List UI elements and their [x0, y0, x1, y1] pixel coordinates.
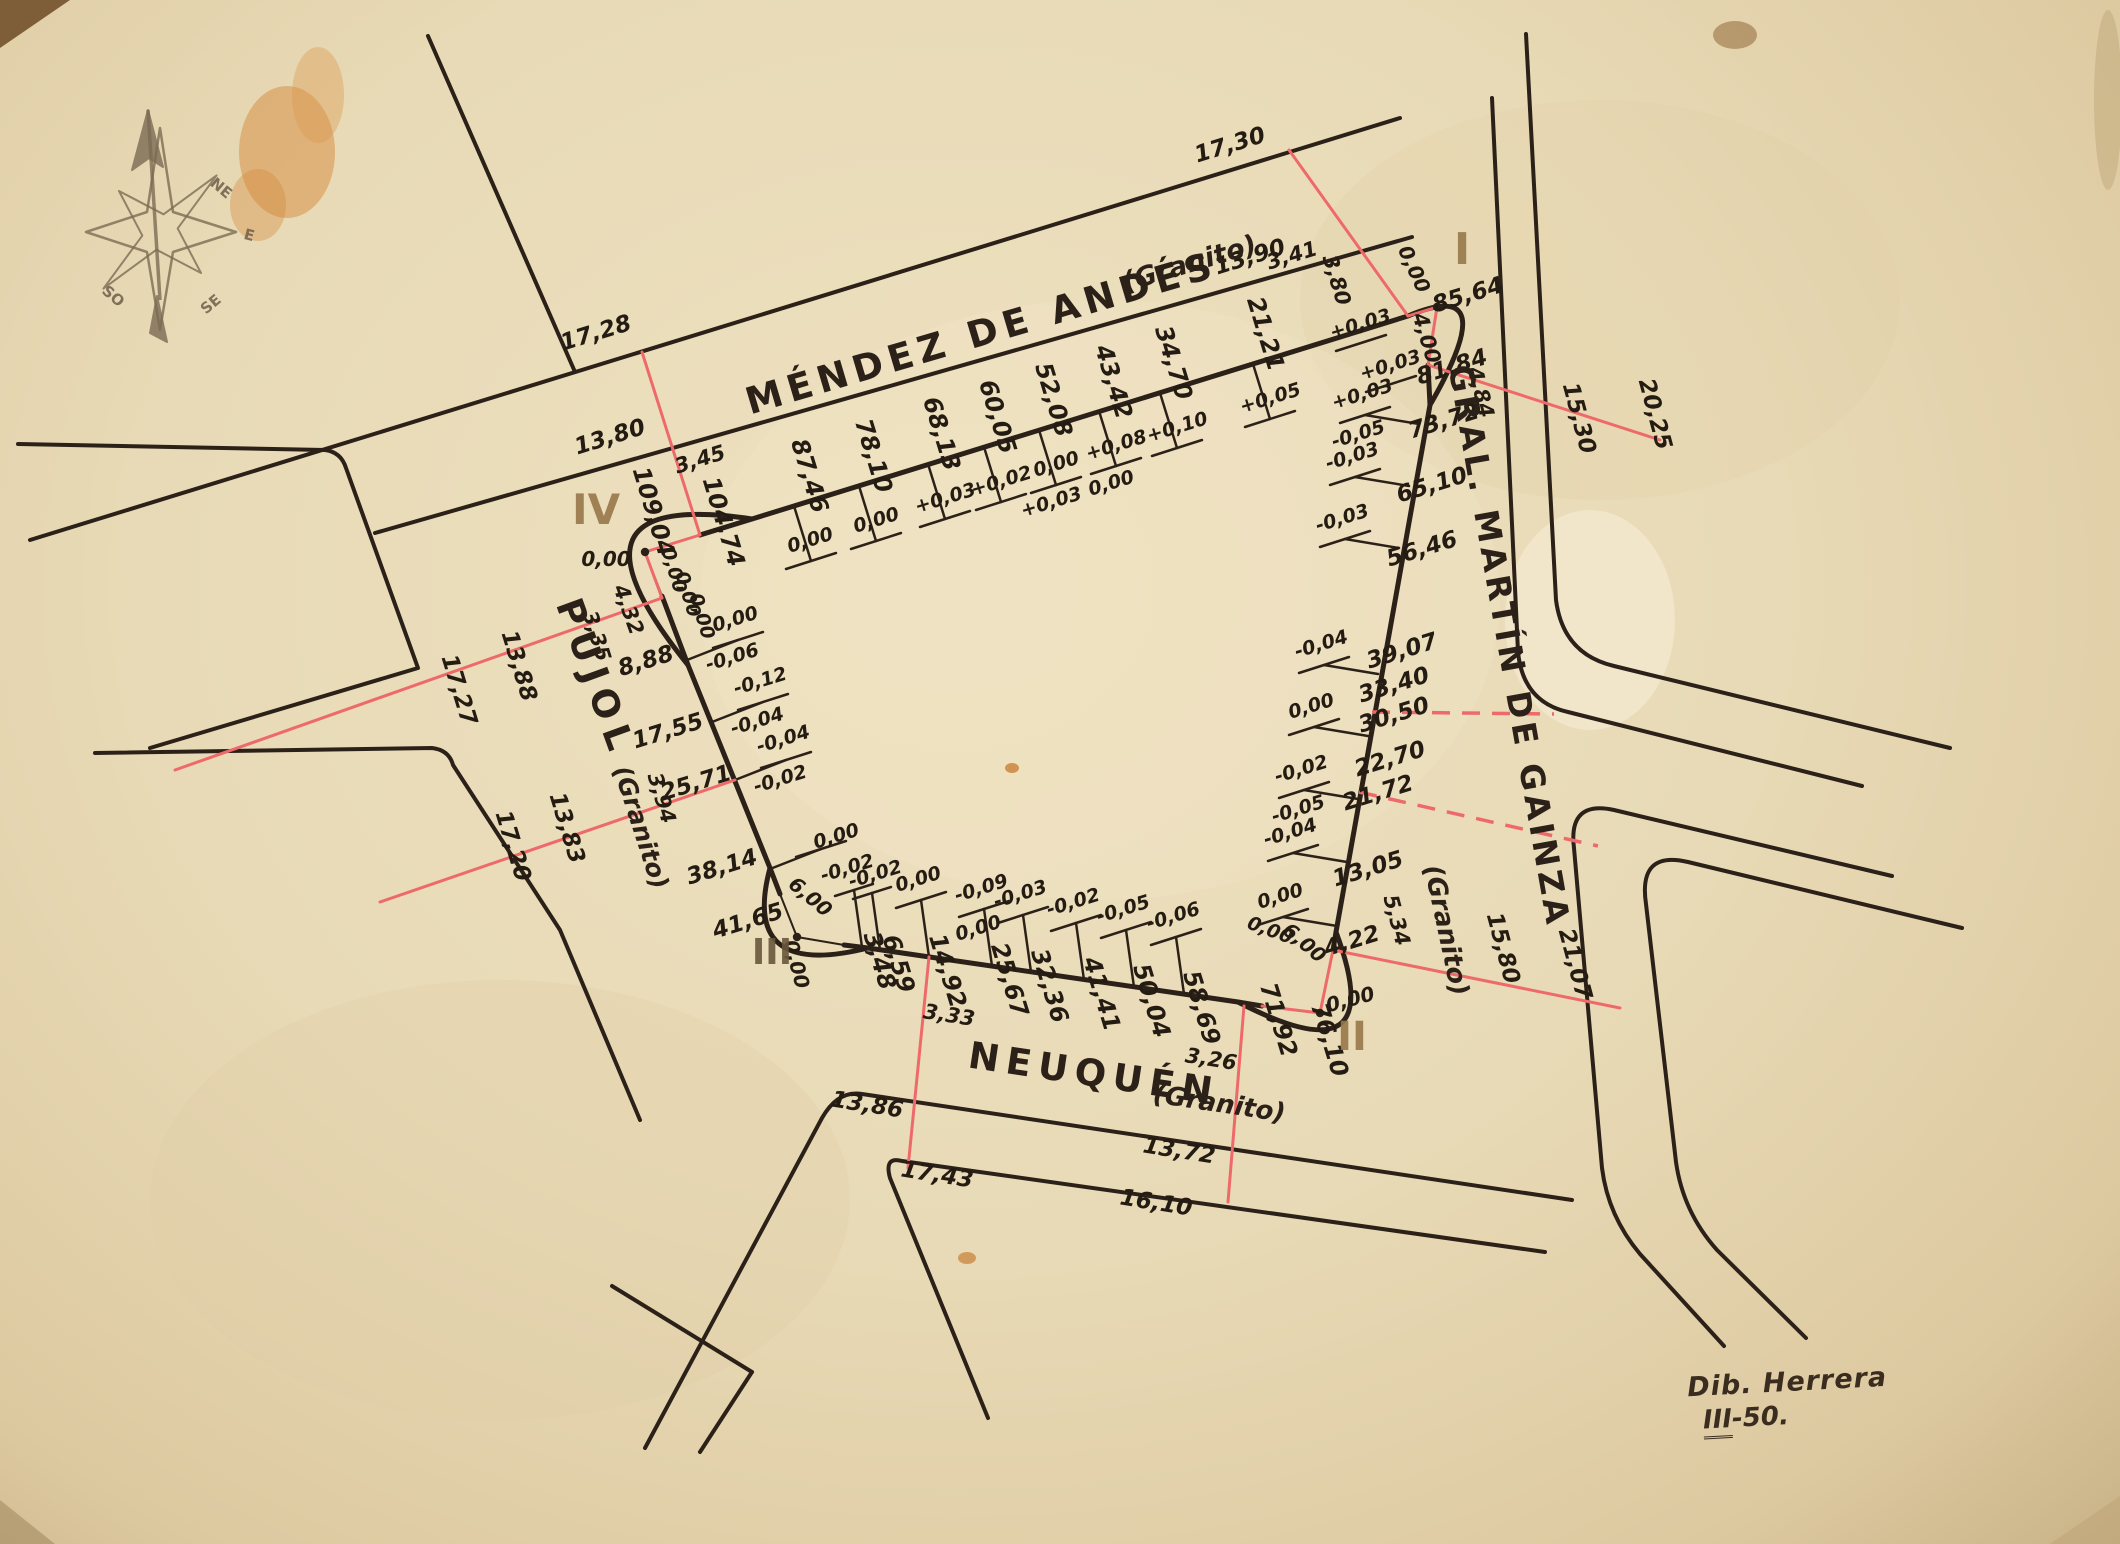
corner-roman-numeral: I — [1454, 224, 1470, 275]
measurement-label: 13,83 — [544, 789, 590, 866]
signature: Dib. Herrera III-50. — [1686, 1361, 1889, 1438]
measurement-label: 0,00 — [581, 547, 630, 571]
measurement-label: 17,20 — [490, 807, 536, 884]
measurement-label: 13,88 — [496, 627, 542, 704]
measurement-label: 5,34 — [1378, 892, 1415, 948]
measurement-label: 16,10 — [1118, 1185, 1194, 1222]
paper-stain — [1713, 21, 1757, 49]
measurement-label: 15,80 — [1481, 910, 1525, 987]
measurement-label: 41,41 — [1077, 952, 1126, 1034]
paper-stain — [0, 0, 70, 48]
measurement-label: 58,69 — [1177, 967, 1226, 1048]
street-line — [1645, 860, 1962, 1338]
measurement-label: 71,92 — [1254, 979, 1303, 1060]
measurement-label: 6,00 — [1278, 918, 1331, 968]
survey-map: 17,3013,9017,2813,803,453,413,8087,4678,… — [0, 0, 2120, 1544]
street-material-label: (Granito) — [1417, 862, 1474, 999]
measurement-label: 13,72 — [1141, 1133, 1217, 1170]
paper-stain — [1005, 763, 1019, 773]
measurement-label: 8,88 — [615, 641, 677, 682]
paper-stain — [958, 1252, 976, 1264]
corner-dot — [641, 548, 649, 556]
paper-stain — [150, 980, 850, 1420]
compass-direction-label: SE — [197, 291, 225, 318]
street-line — [889, 1160, 1546, 1418]
ink-line — [428, 36, 575, 372]
measurement-label: 13,80 — [571, 414, 648, 460]
compass-direction-label: SO — [98, 282, 128, 311]
paper-stain — [230, 169, 286, 241]
compass-rose-layer: NEESESO — [62, 110, 257, 342]
paper-stain — [0, 1500, 55, 1544]
measurement-label: -0,06 — [1144, 898, 1203, 935]
measurement-label: 38,14 — [683, 844, 760, 890]
paper-stain — [2050, 1496, 2120, 1544]
measurement-label: 4,32 — [608, 580, 649, 638]
street-line — [18, 444, 418, 748]
corner-roman-numeral: II — [1337, 1014, 1367, 1060]
paper-stain — [292, 47, 344, 143]
measurement-label: 17,28 — [557, 310, 634, 356]
measurement-label: 0,00 — [811, 819, 862, 854]
ink-line — [700, 1372, 752, 1452]
ink-line — [770, 868, 780, 894]
measurement-label: 50,04 — [1127, 960, 1176, 1041]
survey-map-page: 17,3013,9017,2813,803,453,413,8087,4678,… — [0, 0, 2120, 1544]
measurement-label: 32,36 — [1025, 945, 1074, 1026]
measurement-label: 13,05 — [1329, 846, 1406, 892]
measurement-label: 13,86 — [829, 1087, 905, 1124]
measurement-label: 0,00 — [1255, 879, 1306, 914]
measurement-label: 17,43 — [899, 1157, 975, 1194]
corner-roman-numeral: IV — [572, 485, 621, 534]
measurement-label: 4,22 — [1320, 921, 1383, 963]
corner-roman-numeral: III — [752, 932, 792, 973]
paper-stain — [2094, 10, 2120, 190]
measurement-label: 21,07 — [1553, 926, 1597, 1003]
